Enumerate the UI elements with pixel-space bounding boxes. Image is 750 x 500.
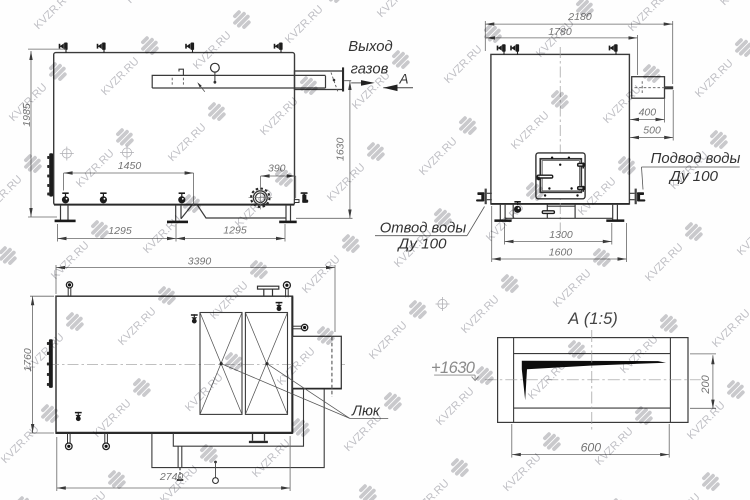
svg-text:KVZR.RU: KVZR.RU — [693, 57, 736, 100]
svg-text:KVZR.RU: KVZR.RU — [375, 0, 418, 20]
svg-text:1450: 1450 — [118, 160, 142, 172]
svg-text:KVZR.RU: KVZR.RU — [718, 0, 750, 8]
svg-text:Выход: Выход — [348, 39, 392, 55]
svg-text:KVZR.RU: KVZR.RU — [735, 215, 750, 258]
svg-text:KVZR.RU: KVZR.RU — [141, 213, 184, 256]
svg-text:KVZR.RU: KVZR.RU — [409, 477, 452, 500]
svg-text:200: 200 — [700, 374, 712, 394]
svg-text:KVZR.RU: KVZR.RU — [49, 239, 92, 282]
svg-text:KVZR.RU: KVZR.RU — [367, 319, 410, 362]
svg-text:KVZR.RU: KVZR.RU — [434, 385, 477, 428]
svg-text:KVZR.RU: KVZR.RU — [643, 241, 686, 284]
svg-text:KVZR.RU: KVZR.RU — [710, 307, 750, 350]
svg-text:KVZR.RU: KVZR.RU — [417, 135, 460, 178]
svg-text:3390: 3390 — [188, 255, 212, 267]
svg-text:KVZR.RU: KVZR.RU — [66, 489, 109, 500]
svg-text:1295: 1295 — [108, 225, 132, 237]
svg-text:KVZR.RU: KVZR.RU — [442, 43, 485, 86]
svg-text:KVZR.RU: KVZR.RU — [325, 161, 368, 204]
svg-text:KVZR.RU: KVZR.RU — [685, 399, 728, 442]
svg-text:KVZR.RU: KVZR.RU — [0, 423, 42, 466]
svg-text:KVZR.RU: KVZR.RU — [660, 491, 703, 500]
svg-text:А (1:5): А (1:5) — [567, 310, 618, 328]
svg-text:KVZR.RU: KVZR.RU — [626, 0, 669, 34]
svg-text:500: 500 — [643, 125, 661, 137]
svg-text:KVZR.RU: KVZR.RU — [283, 3, 326, 46]
svg-text:KVZR.RU: KVZR.RU — [250, 437, 293, 480]
svg-text:KVZR.RU: KVZR.RU — [32, 0, 75, 32]
svg-text:А: А — [398, 72, 408, 87]
svg-text:KVZR.RU: KVZR.RU — [0, 173, 25, 216]
svg-text:1600: 1600 — [549, 247, 573, 259]
svg-text:400: 400 — [639, 107, 657, 119]
svg-text:+1630: +1630 — [431, 359, 476, 377]
svg-text:KVZR.RU: KVZR.RU — [501, 451, 544, 494]
svg-text:1300: 1300 — [549, 229, 573, 241]
svg-text:KVZR.RU: KVZR.RU — [300, 253, 343, 296]
svg-text:KVZR.RU: KVZR.RU — [551, 267, 594, 310]
svg-text:600: 600 — [581, 440, 602, 454]
svg-text:1630: 1630 — [334, 137, 346, 161]
svg-text:KVZR.RU: KVZR.RU — [124, 0, 167, 6]
svg-text:KVZR.RU: KVZR.RU — [459, 293, 502, 336]
